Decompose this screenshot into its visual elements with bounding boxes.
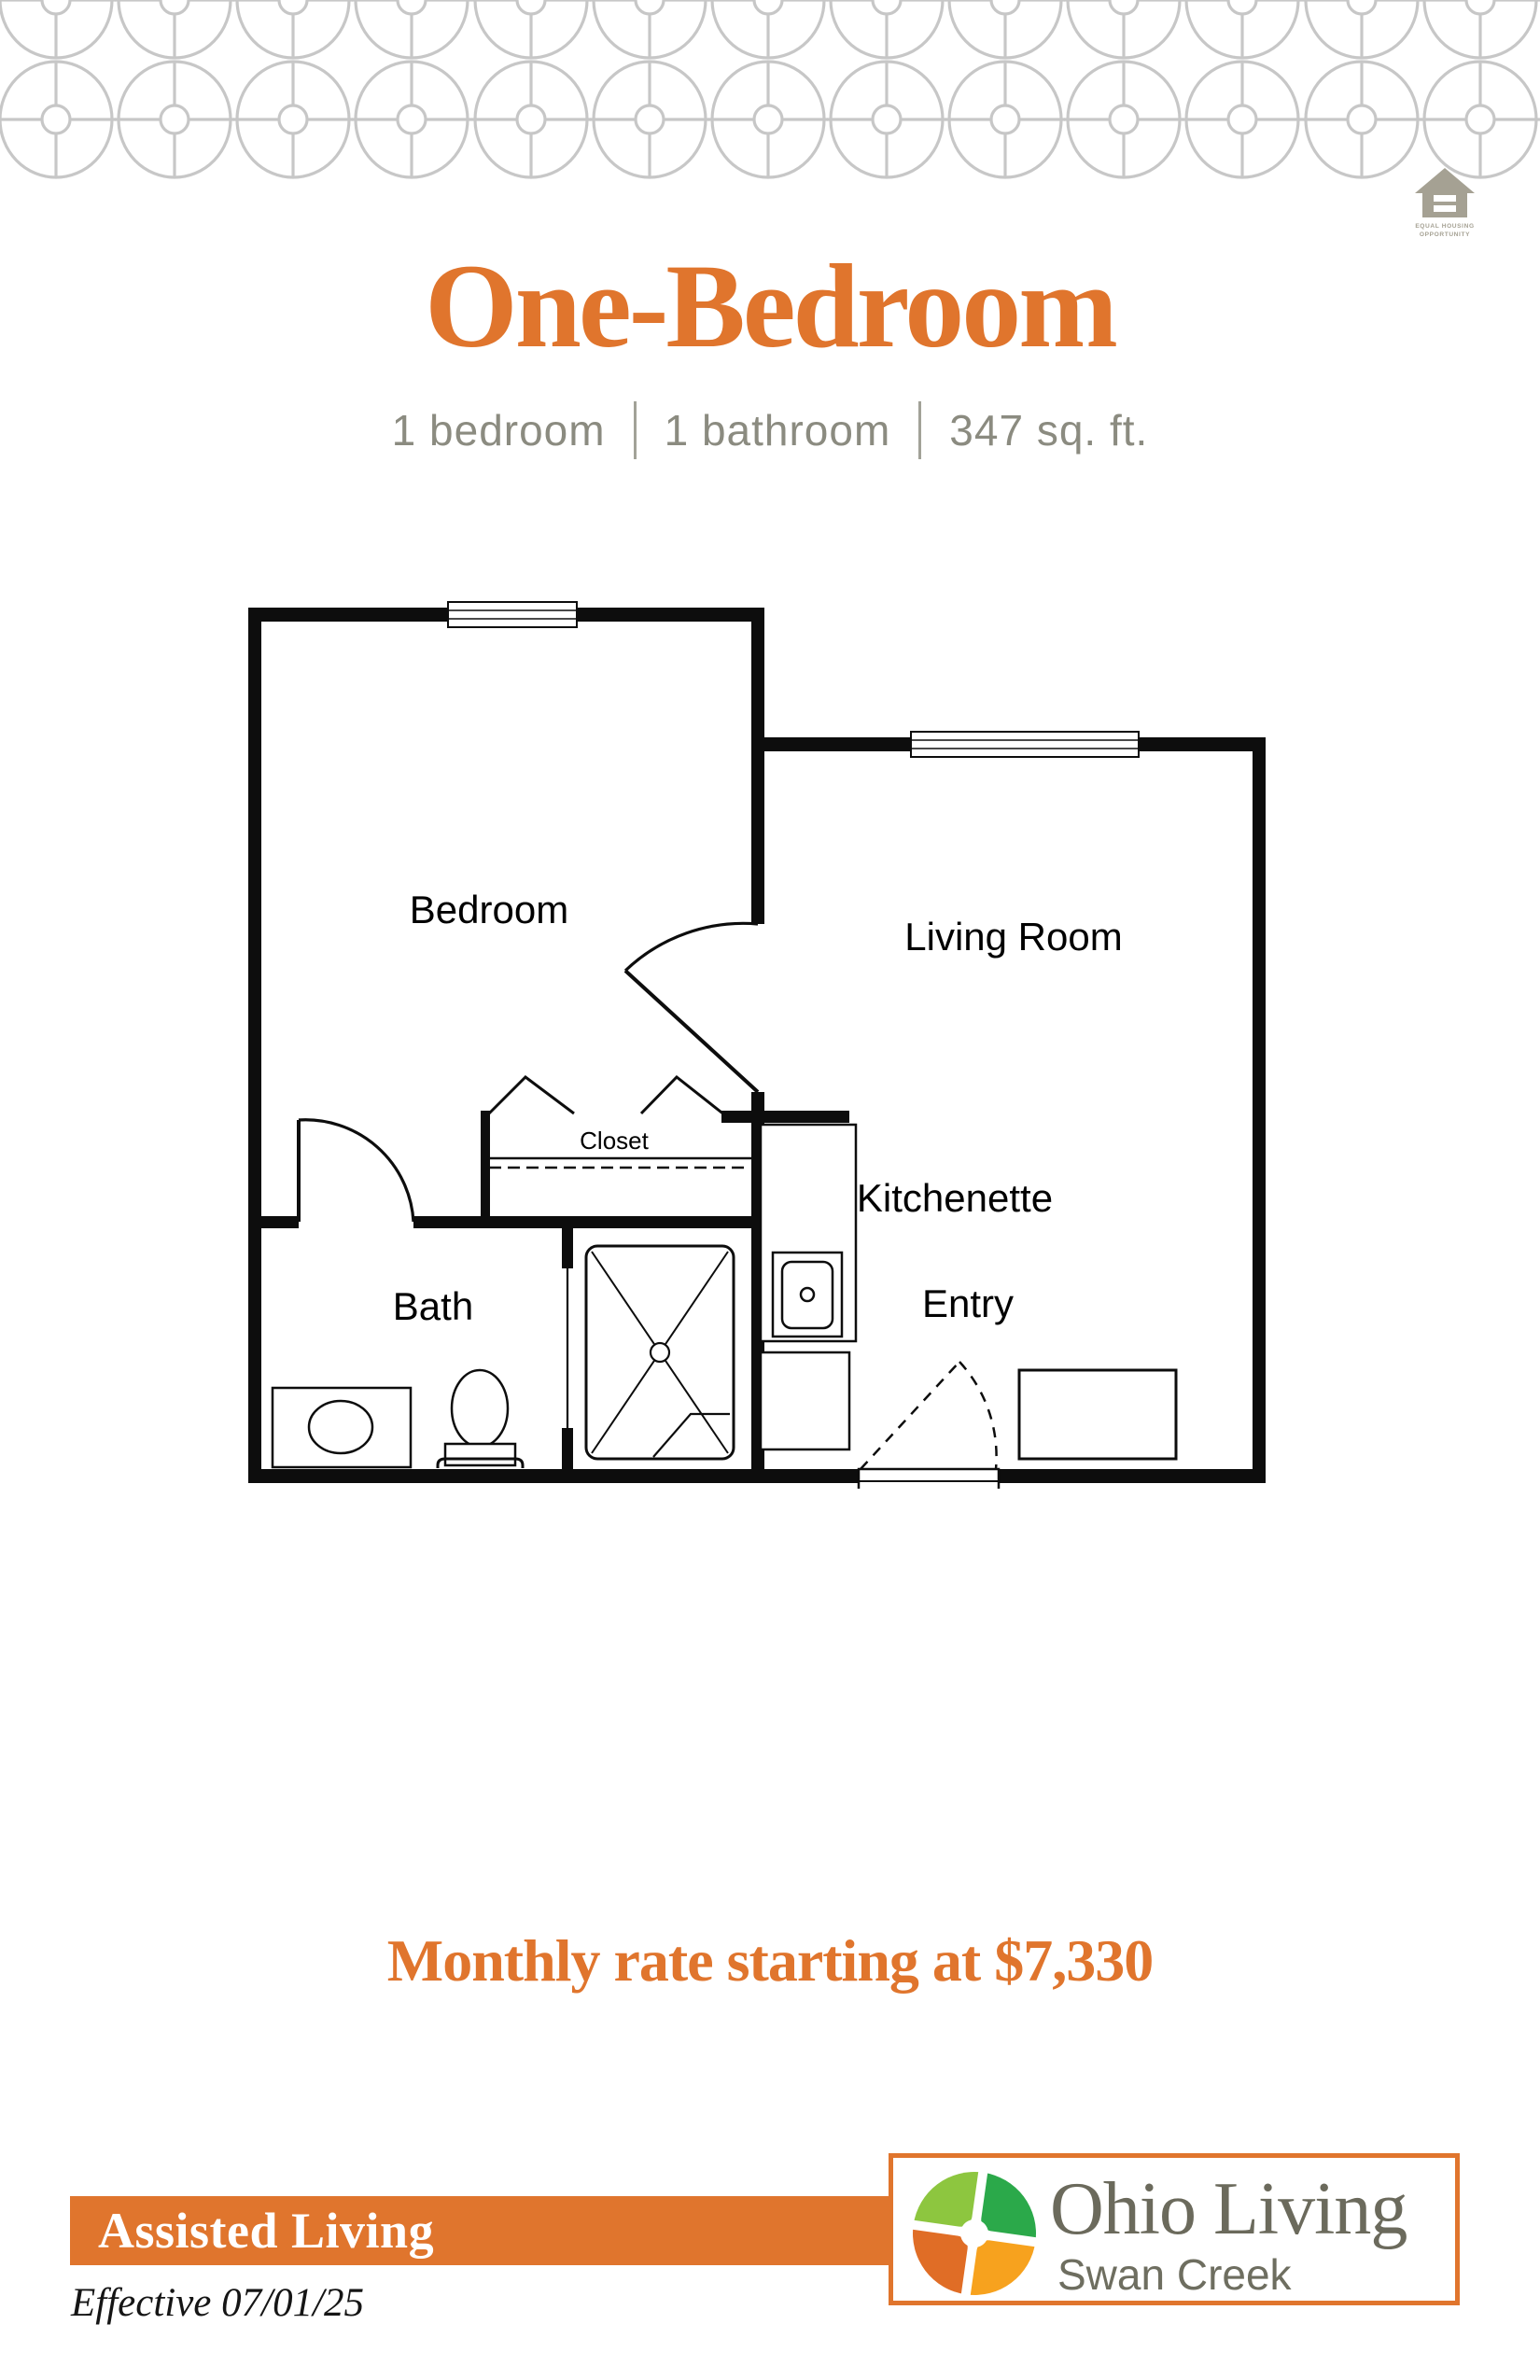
ohio-living-logo-icon — [906, 2165, 1043, 2302]
hanger-icon — [489, 1077, 574, 1113]
care-level-bar: Assisted Living — [70, 2196, 900, 2265]
bedroom-label: Bedroom — [410, 888, 568, 931]
unit-specs: 1 bedroom 1 bathroom 347 sq. ft. — [0, 401, 1540, 459]
spec-bathrooms: 1 bathroom — [665, 405, 891, 455]
community-name: Swan Creek — [1057, 2249, 1292, 2300]
bedroom-door — [625, 923, 758, 1092]
brand-logo-box: Ohio Living Swan Creek — [889, 2153, 1460, 2305]
bath-vanity — [273, 1388, 411, 1467]
entry-bench — [1019, 1370, 1176, 1459]
hanger-icon — [641, 1077, 725, 1115]
page-title: One-Bedroom — [0, 241, 1540, 372]
entry-label: Entry — [922, 1281, 1014, 1325]
equal-housing-house-icon — [1415, 168, 1475, 217]
bath-label: Bath — [393, 1284, 473, 1328]
pattern-row-bottom — [0, 62, 1540, 177]
kitchenette-label: Kitchenette — [857, 1176, 1053, 1220]
monthly-rate: Monthly rate starting at $7,330 — [0, 1926, 1540, 1995]
bath-door — [299, 1120, 413, 1222]
pattern-row-top — [0, 0, 1540, 58]
toilet — [438, 1370, 523, 1468]
kitchenette-counter — [761, 1125, 856, 1449]
shower-drain — [651, 1343, 669, 1362]
living-room-label: Living Room — [904, 915, 1122, 959]
kitchen-faucet — [801, 1288, 814, 1301]
living-room-window — [911, 732, 1139, 757]
entry-door — [861, 1362, 997, 1469]
bedroom-window — [448, 602, 577, 627]
entry-threshold — [859, 1469, 999, 1489]
care-level-label: Assisted Living — [70, 2202, 434, 2260]
shower-bench — [653, 1414, 730, 1457]
equal-housing-opportunity-logo: EQUAL HOUSING OPPORTUNITY — [1413, 166, 1477, 241]
flyer-page: EQUAL HOUSING OPPORTUNITY One-Bedroom 1 … — [0, 0, 1540, 2380]
kitchenette-cabinet — [761, 1352, 849, 1449]
spec-bedrooms: 1 bedroom — [392, 405, 606, 455]
spec-divider — [634, 401, 637, 459]
closet-label: Closet — [580, 1127, 649, 1155]
spec-divider — [918, 401, 921, 459]
brand-name: Ohio Living — [1050, 2167, 1407, 2252]
floor-plan: Bedroom Living Room Closet Kitchenette E… — [245, 595, 1271, 1489]
shower — [567, 1246, 734, 1459]
spec-square-footage: 347 sq. ft. — [949, 405, 1148, 455]
eho-text-line2: OPPORTUNITY — [1420, 231, 1470, 238]
effective-date: Effective 07/01/25 — [71, 2280, 364, 2326]
eho-text-line1: EQUAL HOUSING — [1415, 223, 1474, 230]
decorative-petal-pattern — [0, 0, 1540, 280]
